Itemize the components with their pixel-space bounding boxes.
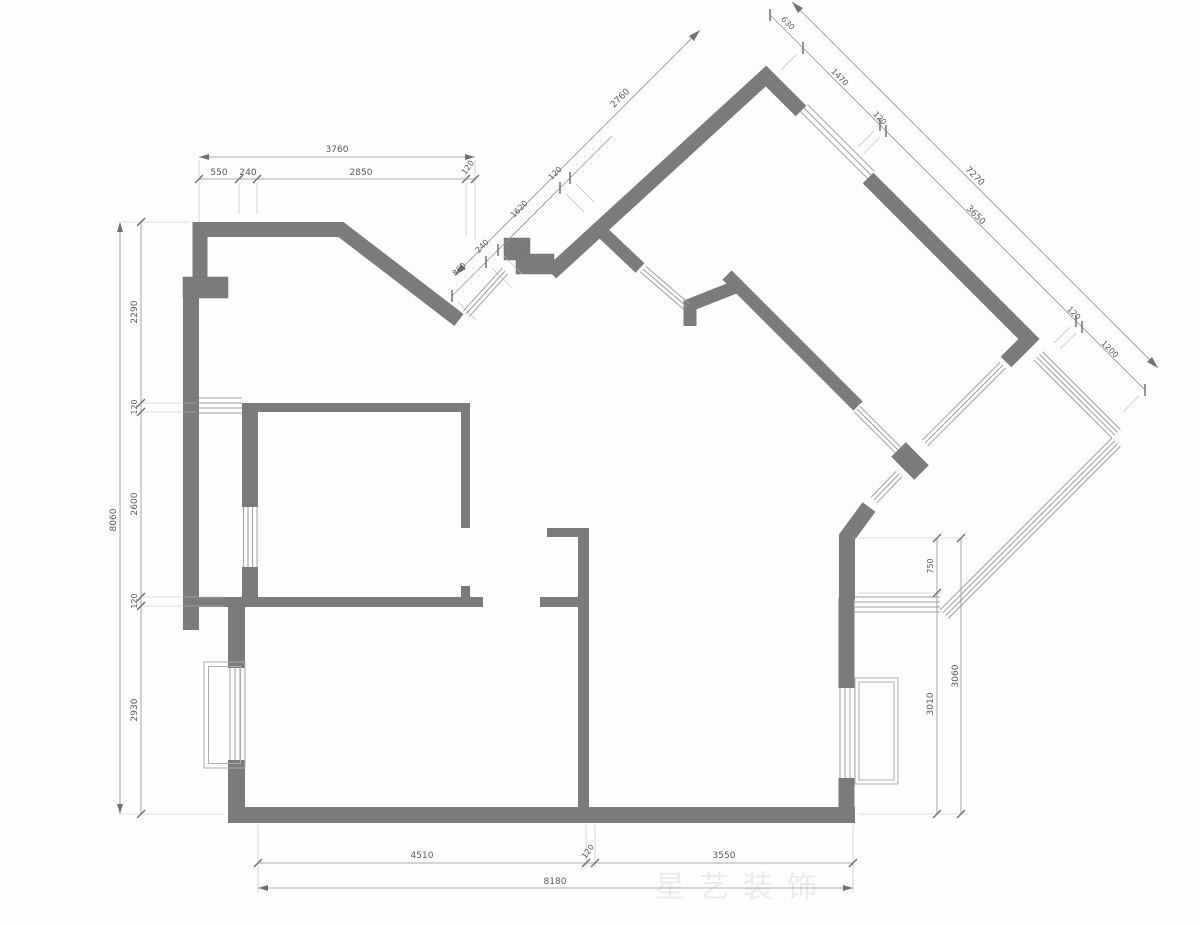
wall-segment (892, 443, 929, 480)
dim-label: 240 (474, 238, 491, 255)
dim-label: 2850 (350, 168, 373, 178)
wall-segment (727, 275, 738, 286)
dim-label: 860 (451, 261, 468, 278)
dim-label: 120 (547, 165, 564, 182)
dim-label: 120 (871, 110, 888, 127)
dim-label: 3550 (713, 851, 736, 861)
wall-segment (601, 231, 640, 268)
wall-segment (516, 254, 554, 274)
windows (199, 105, 1120, 785)
dim-label: 120 (460, 159, 476, 177)
wall-segment (690, 286, 858, 406)
dim-label: 4510 (411, 851, 434, 861)
dim-label: 120 (580, 843, 596, 861)
dim-label: 630 (779, 15, 796, 32)
dim-label: 3010 (926, 692, 936, 715)
window-mid-left (244, 507, 258, 567)
walls (183, 76, 1029, 823)
dim-label: 240 (239, 168, 256, 178)
dimension-left: 8060 2290 120 2600 120 2930 (109, 218, 145, 818)
window-prow-ne (940, 438, 1120, 618)
dim-label: 2290 (130, 300, 140, 323)
dim-label: 550 (210, 168, 227, 178)
window-left-shaft (199, 398, 242, 413)
dim-label: 120 (130, 399, 139, 414)
dim-label: 1620 (509, 199, 530, 220)
dimension-top: 3760 550 240 2850 120 (195, 145, 479, 183)
dim-label: 1200 (1099, 339, 1120, 360)
dim-label: 8180 (544, 877, 567, 887)
wall-segment (183, 277, 228, 298)
dim-label: 2930 (130, 698, 140, 721)
window-prow-nw (1034, 352, 1120, 438)
window-corridor-3 (871, 471, 902, 503)
window-east-corner (922, 362, 1006, 446)
wall-segment (193, 230, 460, 321)
floor-plan-drawing: 3760 550 240 2850 120 8060 2290 120 2600… (0, 0, 1200, 925)
dim-label: 2760 (609, 87, 632, 110)
floor-plan-sheet: 3760 550 240 2850 120 8060 2290 120 2600… (0, 0, 1200, 925)
wall-segment (868, 178, 1029, 362)
watermark-text: 星艺装饰 (655, 870, 831, 905)
dimension-top-right-diagonal: 7270 630 1470 120 3650 120 1200 (770, 2, 1158, 396)
bay-window-left (204, 662, 245, 768)
entry-opening (463, 268, 508, 317)
window-prow-horizontal (855, 597, 940, 612)
extension-lines (122, 54, 1139, 893)
dim-label: 120 (130, 593, 139, 608)
dim-label: 3060 (951, 664, 961, 687)
dimension-right: 750 3010 3060 (926, 534, 965, 818)
window-corridor-1 (640, 266, 690, 310)
wall-segment (847, 507, 869, 600)
window-corridor-2 (854, 406, 901, 453)
dim-label: 750 (926, 558, 935, 573)
dim-label: 120 (1065, 305, 1082, 322)
dim-label: 3650 (964, 204, 987, 227)
dim-label: 8060 (109, 508, 119, 531)
dim-label: 3760 (326, 145, 349, 155)
bay-window-right (840, 678, 898, 784)
wall-segment (551, 76, 801, 273)
dim-label: 2600 (130, 492, 140, 515)
